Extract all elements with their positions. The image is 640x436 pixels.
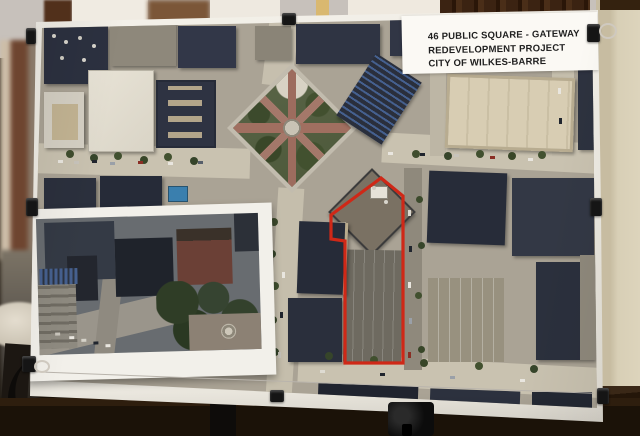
map-building [255,26,291,60]
map-parking-garage [445,74,576,152]
inset-solar-roof [39,268,77,285]
map-building [178,26,236,68]
street-market-west [38,143,251,179]
public-square-plaza-ring [227,63,357,193]
map-building-solar-roof [336,53,422,144]
map-building-white-roof [88,70,154,152]
street-garage-west [430,58,446,156]
map-building [580,255,596,360]
aerial-map [0,0,640,436]
alley-parking-lane [404,168,422,370]
map-building [430,388,521,409]
map-building [427,171,507,246]
title-sheet: 46 PUBLIC SQUARE - GATEWAY REDEVELOPMENT… [401,12,598,74]
inset-photo-sheet [22,203,277,382]
inset-building-brick [176,228,233,286]
inset-plaza [189,313,262,351]
map-building [288,298,342,362]
property-outline-red [0,0,640,436]
street-right-vertical [552,52,574,156]
map-blue-court [168,186,188,202]
map-building [100,176,162,214]
map-building [512,178,594,256]
map-building [44,26,108,84]
map-building [297,221,348,295]
map-building [44,92,84,148]
inset-fountain [221,324,236,339]
easel-clamp-knob [402,424,412,436]
hvac-dots [52,34,56,38]
map-building [296,24,380,64]
property-tan-patch [332,222,346,240]
map-building [390,20,450,56]
street-main-south [266,187,305,396]
cars-horizontal [58,160,63,163]
map-building [536,262,594,360]
trees-row-market-east [412,150,420,158]
wood-trim-top-right [600,0,640,10]
poster-title-line1: 46 PUBLIC SQUARE - GATEWAY [428,27,598,44]
press-conference-photo: 46 PUBLIC SQUARE - GATEWAY REDEVELOPMENT… [0,0,640,436]
trees-row-alley [416,196,423,203]
binder-clip-icon [282,13,296,25]
cars-vertical [408,210,411,216]
poster-crease [34,371,594,393]
property-parking-lot [343,250,403,363]
street-market-east [381,132,596,173]
binder-clip-wire [34,360,50,373]
poster-title-line2: REDEVELOPMENT PROJECT [428,40,598,57]
public-square-paths [233,69,351,187]
inset-building [67,255,98,301]
wall-right-tan [596,0,640,392]
inset-building [234,213,259,252]
binder-clip-icon [270,390,284,402]
map-parking-lot-east [428,278,504,362]
inset-building [44,221,116,281]
poster-board: 46 PUBLIC SQUARE - GATEWAY REDEVELOPMENT… [0,0,640,436]
street-bottom [297,352,598,398]
binder-clip-icon [590,198,602,216]
inset-building-tower [38,284,78,349]
trees-row-market [66,150,74,158]
property-building-roof [328,168,416,256]
inset-cars [69,336,74,339]
binder-clip-icon [597,388,609,404]
inset-building-dark-center [115,237,175,297]
map-building [110,22,176,66]
map-courtyard [52,104,78,140]
public-square-park [233,69,351,187]
map-building [578,58,594,150]
map-building [44,178,96,212]
inset-street-vertical [94,274,123,355]
inset-aerial-photo [36,213,262,355]
inset-trees [156,279,262,352]
trees-row-bottom [325,352,333,360]
map-building [156,80,216,148]
poster-title-line3: CITY OF WILKES-BARRE [428,54,598,71]
map-building [532,392,592,408]
inset-street-diagonal [36,292,179,355]
binder-clip-wire [599,23,617,39]
binder-clip-icon [26,28,36,44]
trees-row-main-south [270,218,278,226]
binder-clip-icon [587,24,600,42]
property-rooftop-unit [370,186,388,199]
binder-clip-icon [26,198,38,216]
